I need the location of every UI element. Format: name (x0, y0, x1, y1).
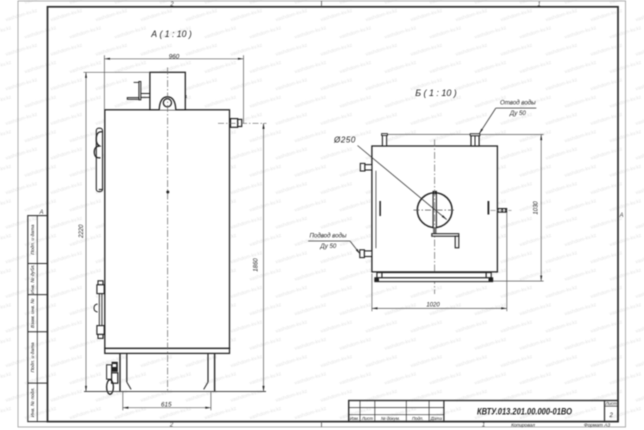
svg-text:vashdom-kv.kz: vashdom-kv.kz (249, 406, 283, 422)
svg-text:1: 1 (537, 2, 540, 8)
svg-text:vashdom-kv.kz: vashdom-kv.kz (24, 371, 58, 387)
svg-text:vashdom-kv.kz: vashdom-kv.kz (455, 42, 489, 58)
svg-text:vashdom-kv.kz: vashdom-kv.kz (0, 406, 13, 422)
svg-text:vashdom-kv.kz: vashdom-kv.kz (230, 319, 264, 335)
svg-text:vashdom-kv.kz: vashdom-kv.kz (114, 25, 148, 41)
svg-text:2: 2 (169, 422, 174, 428)
svg-text:vashdom-kv.kz: vashdom-kv.kz (474, 302, 508, 318)
svg-text:А: А (618, 213, 623, 219)
svg-text:vashdom-kv.kz: vashdom-kv.kz (50, 181, 84, 197)
svg-text:vashdom-kv.kz: vashdom-kv.kz (384, 371, 418, 387)
svg-text:vashdom-kv.kz: vashdom-kv.kz (519, 129, 553, 145)
svg-text:vashdom-kv.kz: vashdom-kv.kz (500, 77, 534, 93)
svg-text:vashdom-kv.kz: vashdom-kv.kz (204, 94, 238, 110)
svg-text:vashdom-kv.kz: vashdom-kv.kz (410, 284, 444, 300)
svg-text:vashdom-kv.kz: vashdom-kv.kz (230, 8, 264, 24)
svg-text:vashdom-kv.kz: vashdom-kv.kz (635, 42, 644, 58)
svg-text:vashdom-kv.kz: vashdom-kv.kz (519, 302, 553, 318)
svg-text:vashdom-kv.kz: vashdom-kv.kz (249, 94, 283, 110)
svg-text:vashdom-kv.kz: vashdom-kv.kz (294, 163, 328, 179)
svg-text:vashdom-kv.kz: vashdom-kv.kz (275, 354, 309, 370)
svg-text:vashdom-kv.kz: vashdom-kv.kz (50, 146, 84, 162)
svg-text:vashdom-kv.kz: vashdom-kv.kz (410, 111, 444, 127)
svg-text:vashdom-kv.kz: vashdom-kv.kz (545, 111, 579, 127)
svg-text:vashdom-kv.kz: vashdom-kv.kz (500, 284, 534, 300)
svg-text:vashdom-kv.kz: vashdom-kv.kz (249, 233, 283, 249)
svg-text:vashdom-kv.kz: vashdom-kv.kz (5, 181, 39, 197)
svg-text:vashdom-kv.kz: vashdom-kv.kz (275, 319, 309, 335)
svg-text:vashdom-kv.kz: vashdom-kv.kz (519, 25, 553, 41)
svg-text:vashdom-kv.kz: vashdom-kv.kz (635, 215, 644, 231)
svg-text:vashdom-kv.kz: vashdom-kv.kz (50, 250, 84, 266)
svg-text:vashdom-kv.kz: vashdom-kv.kz (635, 354, 644, 370)
svg-text:vashdom-kv.kz: vashdom-kv.kz (50, 8, 84, 24)
svg-text:vashdom-kv.kz: vashdom-kv.kz (545, 354, 579, 370)
svg-text:vashdom-kv.kz: vashdom-kv.kz (429, 371, 463, 387)
svg-text:1030: 1030 (533, 201, 539, 215)
svg-text:vashdom-kv.kz: vashdom-kv.kz (564, 233, 598, 249)
svg-text:vashdom-kv.kz: vashdom-kv.kz (24, 302, 58, 318)
svg-text:vashdom-kv.kz: vashdom-kv.kz (249, 25, 283, 41)
svg-text:vashdom-kv.kz: vashdom-kv.kz (320, 181, 354, 197)
svg-text:vashdom-kv.kz: vashdom-kv.kz (185, 8, 219, 24)
svg-text:vashdom-kv.kz: vashdom-kv.kz (320, 215, 354, 231)
svg-text:vashdom-kv.kz: vashdom-kv.kz (339, 25, 373, 41)
svg-text:vashdom-kv.kz: vashdom-kv.kz (230, 388, 264, 404)
svg-text:vashdom-kv.kz: vashdom-kv.kz (500, 250, 534, 266)
svg-text:vashdom-kv.kz: vashdom-kv.kz (455, 354, 489, 370)
svg-text:vashdom-kv.kz: vashdom-kv.kz (339, 336, 373, 352)
svg-text:vashdom-kv.kz: vashdom-kv.kz (564, 60, 598, 76)
svg-text:vashdom-kv.kz: vashdom-kv.kz (294, 406, 328, 422)
svg-text:vashdom-kv.kz: vashdom-kv.kz (24, 336, 58, 352)
svg-text:vashdom-kv.kz: vashdom-kv.kz (455, 8, 489, 24)
svg-text:Подп. и дата: Подп. и дата (30, 224, 36, 254)
svg-text:vashdom-kv.kz: vashdom-kv.kz (365, 42, 399, 58)
svg-text:vashdom-kv.kz: vashdom-kv.kz (365, 319, 399, 335)
svg-text:vashdom-kv.kz: vashdom-kv.kz (474, 336, 508, 352)
svg-text:vashdom-kv.kz: vashdom-kv.kz (339, 371, 373, 387)
svg-text:vashdom-kv.kz: vashdom-kv.kz (500, 42, 534, 58)
svg-text:vashdom-kv.kz: vashdom-kv.kz (0, 163, 13, 179)
svg-text:vashdom-kv.kz: vashdom-kv.kz (410, 8, 444, 24)
svg-text:vashdom-kv.kz: vashdom-kv.kz (384, 94, 418, 110)
svg-text:vashdom-kv.kz: vashdom-kv.kz (24, 267, 58, 283)
svg-text:vashdom-kv.kz: vashdom-kv.kz (5, 146, 39, 162)
svg-text:vashdom-kv.kz: vashdom-kv.kz (95, 8, 129, 24)
svg-text:vashdom-kv.kz: vashdom-kv.kz (429, 336, 463, 352)
svg-text:vashdom-kv.kz: vashdom-kv.kz (635, 284, 644, 300)
svg-text:vashdom-kv.kz: vashdom-kv.kz (185, 77, 219, 93)
svg-text:vashdom-kv.kz: vashdom-kv.kz (24, 163, 58, 179)
svg-text:vashdom-kv.kz: vashdom-kv.kz (564, 25, 598, 41)
svg-text:vashdom-kv.kz: vashdom-kv.kz (24, 25, 58, 41)
svg-text:vashdom-kv.kz: vashdom-kv.kz (95, 388, 129, 404)
svg-text:vashdom-kv.kz: vashdom-kv.kz (24, 94, 58, 110)
svg-text:vashdom-kv.kz: vashdom-kv.kz (275, 181, 309, 197)
svg-text:vashdom-kv.kz: vashdom-kv.kz (159, 371, 193, 387)
svg-text:vashdom-kv.kz: vashdom-kv.kz (320, 111, 354, 127)
svg-text:vashdom-kv.kz: vashdom-kv.kz (114, 94, 148, 110)
svg-text:vashdom-kv.kz: vashdom-kv.kz (410, 42, 444, 58)
svg-text:Копировал: Копировал (511, 423, 535, 429)
svg-text:vashdom-kv.kz: vashdom-kv.kz (69, 406, 103, 422)
svg-text:vashdom-kv.kz: vashdom-kv.kz (0, 25, 13, 41)
svg-text:vashdom-kv.kz: vashdom-kv.kz (384, 129, 418, 145)
svg-text:vashdom-kv.kz: vashdom-kv.kz (545, 146, 579, 162)
svg-text:Лист: Лист (605, 401, 618, 406)
svg-text:vashdom-kv.kz: vashdom-kv.kz (429, 25, 463, 41)
svg-text:vashdom-kv.kz: vashdom-kv.kz (635, 319, 644, 335)
svg-text:vashdom-kv.kz: vashdom-kv.kz (635, 111, 644, 127)
svg-text:vashdom-kv.kz: vashdom-kv.kz (564, 371, 598, 387)
svg-text:vashdom-kv.kz: vashdom-kv.kz (249, 198, 283, 214)
svg-text:vashdom-kv.kz: vashdom-kv.kz (545, 77, 579, 93)
svg-text:Подп. и дата: Подп. и дата (30, 342, 36, 372)
svg-text:vashdom-kv.kz: vashdom-kv.kz (564, 129, 598, 145)
svg-text:vashdom-kv.kz: vashdom-kv.kz (545, 215, 579, 231)
svg-text:vashdom-kv.kz: vashdom-kv.kz (275, 146, 309, 162)
svg-text:vashdom-kv.kz: vashdom-kv.kz (230, 354, 264, 370)
svg-text:vashdom-kv.kz: vashdom-kv.kz (294, 94, 328, 110)
svg-text:vashdom-kv.kz: vashdom-kv.kz (140, 8, 174, 24)
svg-text:vashdom-kv.kz: vashdom-kv.kz (249, 163, 283, 179)
svg-text:vashdom-kv.kz: vashdom-kv.kz (230, 146, 264, 162)
svg-text:vashdom-kv.kz: vashdom-kv.kz (500, 8, 534, 24)
svg-text:vashdom-kv.kz: vashdom-kv.kz (365, 8, 399, 24)
svg-text:vashdom-kv.kz: vashdom-kv.kz (249, 336, 283, 352)
svg-text:vashdom-kv.kz: vashdom-kv.kz (635, 146, 644, 162)
svg-text:vashdom-kv.kz: vashdom-kv.kz (339, 60, 373, 76)
svg-text:Взам. инв. №: Взам. инв. № (30, 298, 36, 328)
svg-text:vashdom-kv.kz: vashdom-kv.kz (545, 181, 579, 197)
svg-text:vashdom-kv.kz: vashdom-kv.kz (410, 388, 444, 404)
svg-text:vashdom-kv.kz: vashdom-kv.kz (50, 42, 84, 58)
svg-text:vashdom-kv.kz: vashdom-kv.kz (204, 60, 238, 76)
svg-text:vashdom-kv.kz: vashdom-kv.kz (320, 319, 354, 335)
svg-text:vashdom-kv.kz: vashdom-kv.kz (5, 77, 39, 93)
svg-text:vashdom-kv.kz: vashdom-kv.kz (545, 388, 579, 404)
svg-text:Инв. № подл.: Инв. № подл. (30, 388, 36, 418)
svg-text:vashdom-kv.kz: vashdom-kv.kz (230, 181, 264, 197)
svg-text:vashdom-kv.kz: vashdom-kv.kz (384, 60, 418, 76)
svg-text:vashdom-kv.kz: vashdom-kv.kz (24, 233, 58, 249)
svg-text:Формат А3: Формат А3 (584, 423, 611, 429)
svg-text:vashdom-kv.kz: vashdom-kv.kz (69, 25, 103, 41)
svg-text:vashdom-kv.kz: vashdom-kv.kz (0, 371, 13, 387)
svg-text:vashdom-kv.kz: vashdom-kv.kz (365, 354, 399, 370)
svg-text:vashdom-kv.kz: vashdom-kv.kz (5, 111, 39, 127)
svg-text:vashdom-kv.kz: vashdom-kv.kz (204, 371, 238, 387)
svg-text:Подп.: Подп. (412, 416, 423, 421)
svg-text:vashdom-kv.kz: vashdom-kv.kz (230, 284, 264, 300)
svg-text:vashdom-kv.kz: vashdom-kv.kz (294, 198, 328, 214)
svg-text:vashdom-kv.kz: vashdom-kv.kz (500, 354, 534, 370)
svg-text:Лист: Лист (361, 416, 373, 421)
svg-text:vashdom-kv.kz: vashdom-kv.kz (249, 302, 283, 318)
svg-text:vashdom-kv.kz: vashdom-kv.kz (365, 111, 399, 127)
svg-text:vashdom-kv.kz: vashdom-kv.kz (320, 250, 354, 266)
svg-text:vashdom-kv.kz: vashdom-kv.kz (140, 354, 174, 370)
svg-text:vashdom-kv.kz: vashdom-kv.kz (294, 60, 328, 76)
svg-text:vashdom-kv.kz: vashdom-kv.kz (500, 388, 534, 404)
svg-text:Ø250: Ø250 (333, 136, 356, 145)
svg-text:vashdom-kv.kz: vashdom-kv.kz (564, 302, 598, 318)
svg-text:vashdom-kv.kz: vashdom-kv.kz (24, 60, 58, 76)
svg-text:vashdom-kv.kz: vashdom-kv.kz (365, 388, 399, 404)
svg-text:vashdom-kv.kz: vashdom-kv.kz (0, 0, 13, 6)
svg-text:615: 615 (161, 402, 172, 409)
svg-text:vashdom-kv.kz: vashdom-kv.kz (519, 60, 553, 76)
svg-text:vashdom-kv.kz: vashdom-kv.kz (0, 336, 13, 352)
svg-text:vashdom-kv.kz: vashdom-kv.kz (564, 336, 598, 352)
svg-text:1020: 1020 (426, 303, 440, 309)
svg-text:vashdom-kv.kz: vashdom-kv.kz (564, 198, 598, 214)
svg-text:vashdom-kv.kz: vashdom-kv.kz (320, 8, 354, 24)
svg-text:vashdom-kv.kz: vashdom-kv.kz (320, 77, 354, 93)
svg-text:vashdom-kv.kz: vashdom-kv.kz (635, 181, 644, 197)
svg-text:vashdom-kv.kz: vashdom-kv.kz (50, 388, 84, 404)
svg-text:Б ( 1 : 10 ): Б ( 1 : 10 ) (415, 87, 457, 98)
svg-text:vashdom-kv.kz: vashdom-kv.kz (519, 336, 553, 352)
svg-text:vashdom-kv.kz: vashdom-kv.kz (339, 267, 373, 283)
svg-text:vashdom-kv.kz: vashdom-kv.kz (0, 60, 13, 76)
svg-text:vashdom-kv.kz: vashdom-kv.kz (500, 215, 534, 231)
svg-text:vashdom-kv.kz: vashdom-kv.kz (0, 302, 13, 318)
svg-text:Ду 50: Ду 50 (509, 110, 526, 117)
svg-text:vashdom-kv.kz: vashdom-kv.kz (564, 267, 598, 283)
svg-text:Изм.: Изм. (350, 416, 359, 421)
svg-text:vashdom-kv.kz: vashdom-kv.kz (249, 371, 283, 387)
svg-text:vashdom-kv.kz: vashdom-kv.kz (185, 354, 219, 370)
svg-text:2: 2 (169, 2, 174, 8)
svg-text:vashdom-kv.kz: vashdom-kv.kz (0, 94, 13, 110)
svg-text:vashdom-kv.kz: vashdom-kv.kz (249, 60, 283, 76)
svg-text:vashdom-kv.kz: vashdom-kv.kz (339, 94, 373, 110)
svg-text:vashdom-kv.kz: vashdom-kv.kz (275, 111, 309, 127)
svg-text:vashdom-kv.kz: vashdom-kv.kz (519, 233, 553, 249)
svg-text:vashdom-kv.kz: vashdom-kv.kz (294, 302, 328, 318)
svg-text:vashdom-kv.kz: vashdom-kv.kz (455, 284, 489, 300)
svg-text:vashdom-kv.kz: vashdom-kv.kz (275, 215, 309, 231)
svg-text:1: 1 (482, 422, 485, 428)
svg-text:Подвод воды: Подвод воды (310, 232, 347, 239)
svg-text:Инв. № дубл.: Инв. № дубл. (30, 264, 36, 294)
svg-text:vashdom-kv.kz: vashdom-kv.kz (95, 42, 129, 58)
svg-text:А ( 1 : 10 ): А ( 1 : 10 ) (150, 28, 191, 39)
svg-text:vashdom-kv.kz: vashdom-kv.kz (204, 25, 238, 41)
svg-text:vashdom-kv.kz: vashdom-kv.kz (474, 371, 508, 387)
svg-text:vashdom-kv.kz: vashdom-kv.kz (455, 77, 489, 93)
svg-text:vashdom-kv.kz: vashdom-kv.kz (500, 146, 534, 162)
svg-text:vashdom-kv.kz: vashdom-kv.kz (275, 284, 309, 300)
svg-text:vashdom-kv.kz: vashdom-kv.kz (0, 198, 13, 214)
svg-text:vashdom-kv.kz: vashdom-kv.kz (410, 354, 444, 370)
svg-text:vashdom-kv.kz: vashdom-kv.kz (185, 42, 219, 58)
svg-text:vashdom-kv.kz: vashdom-kv.kz (545, 284, 579, 300)
svg-text:vashdom-kv.kz: vashdom-kv.kz (519, 371, 553, 387)
svg-text:1860: 1860 (254, 258, 260, 272)
svg-text:vashdom-kv.kz: vashdom-kv.kz (0, 233, 13, 249)
svg-text:vashdom-kv.kz: vashdom-kv.kz (339, 302, 373, 318)
svg-text:vashdom-kv.kz: vashdom-kv.kz (275, 42, 309, 58)
svg-text:vashdom-kv.kz: vashdom-kv.kz (5, 8, 39, 24)
svg-text:vashdom-kv.kz: vashdom-kv.kz (635, 77, 644, 93)
svg-text:960: 960 (169, 53, 180, 60)
svg-text:vashdom-kv.kz: vashdom-kv.kz (320, 42, 354, 58)
svg-text:vashdom-kv.kz: vashdom-kv.kz (95, 77, 129, 93)
svg-text:vashdom-kv.kz: vashdom-kv.kz (230, 77, 264, 93)
svg-text:vashdom-kv.kz: vashdom-kv.kz (320, 146, 354, 162)
svg-text:vashdom-kv.kz: vashdom-kv.kz (0, 129, 13, 145)
svg-text:vashdom-kv.kz: vashdom-kv.kz (230, 215, 264, 231)
svg-text:vashdom-kv.kz: vashdom-kv.kz (230, 42, 264, 58)
svg-text:Отвод воды: Отвод воды (500, 100, 536, 107)
svg-text:vashdom-kv.kz: vashdom-kv.kz (429, 60, 463, 76)
svg-text:vashdom-kv.kz: vashdom-kv.kz (24, 129, 58, 145)
svg-text:vashdom-kv.kz: vashdom-kv.kz (185, 388, 219, 404)
svg-text:vashdom-kv.kz: vashdom-kv.kz (635, 250, 644, 266)
svg-text:vashdom-kv.kz: vashdom-kv.kz (564, 94, 598, 110)
svg-text:vashdom-kv.kz: vashdom-kv.kz (24, 406, 58, 422)
svg-text:vashdom-kv.kz: vashdom-kv.kz (365, 284, 399, 300)
svg-text:КВТУ.013.201.00.000-01ВО: КВТУ.013.201.00.000-01ВО (477, 407, 572, 418)
svg-text:vashdom-kv.kz: vashdom-kv.kz (384, 25, 418, 41)
svg-text:vashdom-kv.kz: vashdom-kv.kz (384, 336, 418, 352)
svg-text:vashdom-kv.kz: vashdom-kv.kz (5, 42, 39, 58)
svg-text:vashdom-kv.kz: vashdom-kv.kz (545, 319, 579, 335)
svg-text:vashdom-kv.kz: vashdom-kv.kz (339, 198, 373, 214)
svg-text:vashdom-kv.kz: vashdom-kv.kz (114, 371, 148, 387)
svg-text:vashdom-kv.kz: vashdom-kv.kz (474, 60, 508, 76)
svg-text:vashdom-kv.kz: vashdom-kv.kz (114, 60, 148, 76)
svg-text:vashdom-kv.kz: vashdom-kv.kz (384, 302, 418, 318)
svg-text:vashdom-kv.kz: vashdom-kv.kz (275, 77, 309, 93)
svg-text:vashdom-kv.kz: vashdom-kv.kz (320, 284, 354, 300)
svg-text:vashdom-kv.kz: vashdom-kv.kz (0, 267, 13, 283)
svg-text:vashdom-kv.kz: vashdom-kv.kz (249, 129, 283, 145)
svg-text:vashdom-kv.kz: vashdom-kv.kz (545, 250, 579, 266)
svg-text:vashdom-kv.kz: vashdom-kv.kz (50, 77, 84, 93)
svg-text:vashdom-kv.kz: vashdom-kv.kz (500, 319, 534, 335)
svg-text:vashdom-kv.kz: vashdom-kv.kz (294, 336, 328, 352)
svg-text:Дата: Дата (430, 416, 443, 421)
svg-text:vashdom-kv.kz: vashdom-kv.kz (275, 8, 309, 24)
svg-text:vashdom-kv.kz: vashdom-kv.kz (50, 354, 84, 370)
svg-text:Ду 50: Ду 50 (319, 243, 336, 250)
svg-text:vashdom-kv.kz: vashdom-kv.kz (275, 388, 309, 404)
svg-text:vashdom-kv.kz: vashdom-kv.kz (50, 319, 84, 335)
svg-text:vashdom-kv.kz: vashdom-kv.kz (294, 371, 328, 387)
svg-text:vashdom-kv.kz: vashdom-kv.kz (410, 319, 444, 335)
svg-text:vashdom-kv.kz: vashdom-kv.kz (294, 267, 328, 283)
svg-text:vashdom-kv.kz: vashdom-kv.kz (275, 250, 309, 266)
svg-text:vashdom-kv.kz: vashdom-kv.kz (500, 181, 534, 197)
svg-text:vashdom-kv.kz: vashdom-kv.kz (320, 354, 354, 370)
svg-text:vashdom-kv.kz: vashdom-kv.kz (294, 25, 328, 41)
svg-text:vashdom-kv.kz: vashdom-kv.kz (429, 129, 463, 145)
svg-text:2: 2 (609, 413, 614, 419)
svg-text:vashdom-kv.kz: vashdom-kv.kz (635, 8, 644, 24)
svg-text:vashdom-kv.kz: vashdom-kv.kz (519, 163, 553, 179)
svg-text:2220: 2220 (79, 224, 85, 239)
svg-text:№ докум.: № докум. (381, 416, 400, 421)
svg-text:vashdom-kv.kz: vashdom-kv.kz (635, 388, 644, 404)
svg-text:vashdom-kv.kz: vashdom-kv.kz (474, 25, 508, 41)
svg-text:vashdom-kv.kz: vashdom-kv.kz (455, 111, 489, 127)
svg-text:vashdom-kv.kz: vashdom-kv.kz (294, 129, 328, 145)
svg-text:vashdom-kv.kz: vashdom-kv.kz (50, 111, 84, 127)
svg-text:vashdom-kv.kz: vashdom-kv.kz (455, 319, 489, 335)
svg-text:vashdom-kv.kz: vashdom-kv.kz (50, 284, 84, 300)
svg-text:vashdom-kv.kz: vashdom-kv.kz (519, 267, 553, 283)
svg-text:vashdom-kv.kz: vashdom-kv.kz (545, 8, 579, 24)
svg-text:vashdom-kv.kz: vashdom-kv.kz (545, 42, 579, 58)
svg-text:vashdom-kv.kz: vashdom-kv.kz (455, 388, 489, 404)
svg-text:vashdom-kv.kz: vashdom-kv.kz (564, 163, 598, 179)
svg-text:vashdom-kv.kz: vashdom-kv.kz (365, 77, 399, 93)
